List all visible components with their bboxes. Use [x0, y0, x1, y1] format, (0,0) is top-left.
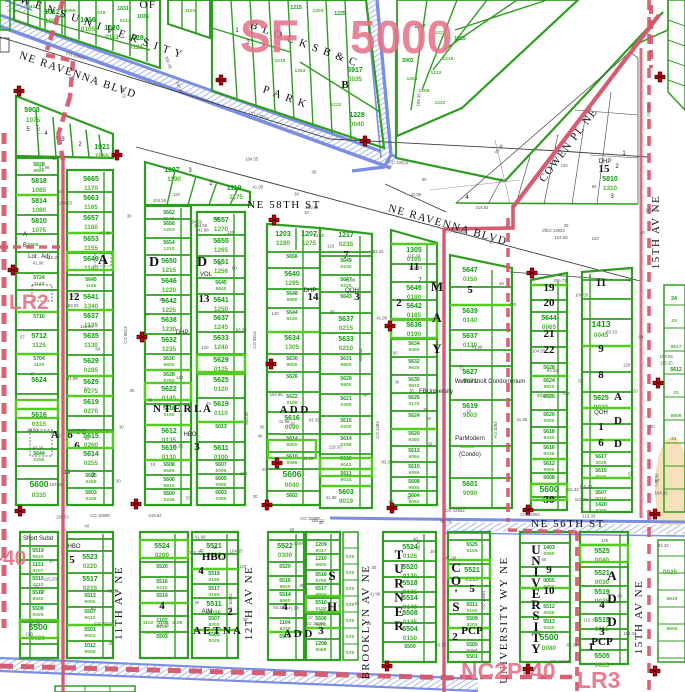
svg-text:5615: 5615: [340, 418, 352, 424]
svg-text:LR3: LR3: [577, 667, 620, 692]
svg-text:1165: 1165: [84, 204, 98, 211]
svg-text:120: 120: [239, 564, 247, 569]
svg-text:0095: 0095: [216, 468, 227, 474]
svg-text:QOH: QOH: [594, 410, 608, 416]
svg-text:1208: 1208: [419, 88, 430, 94]
svg-text:15TH AV NE: 15TH AV NE: [633, 580, 645, 655]
svg-text:5513: 5513: [543, 619, 555, 625]
svg-text:104.55: 104.55: [655, 491, 669, 496]
svg-text:41.98: 41.98: [369, 591, 380, 596]
svg-text:30: 30: [127, 213, 132, 218]
svg-text:5616: 5616: [543, 445, 555, 451]
svg-text:9830: 9830: [409, 485, 420, 491]
svg-text:5516: 5516: [279, 578, 291, 584]
svg-text:5520: 5520: [402, 564, 418, 571]
svg-text:30: 30: [148, 397, 153, 402]
svg-text:5645: 5645: [215, 280, 227, 286]
svg-text:1280: 1280: [276, 240, 291, 247]
svg-text:0125: 0125: [403, 553, 418, 560]
svg-text:4: 4: [198, 565, 204, 577]
svg-text:120: 120: [560, 163, 568, 168]
svg-text:83.33: 83.33: [313, 233, 324, 238]
svg-text:10: 10: [150, 462, 155, 467]
svg-text:41.98: 41.98: [445, 555, 456, 560]
svg-text:0270: 0270: [84, 408, 99, 415]
svg-text:9810: 9810: [164, 483, 175, 489]
svg-text:5624: 5624: [543, 378, 555, 384]
svg-text:0025: 0025: [33, 612, 44, 618]
svg-text:10: 10: [290, 421, 295, 426]
svg-text:60: 60: [58, 189, 63, 194]
svg-text:CO 13924: CO 13924: [388, 159, 408, 165]
svg-text:1102: 1102: [143, 620, 154, 626]
svg-text:NC2P-40: NC2P-40: [461, 658, 556, 684]
svg-text:MAY: MAY: [431, 279, 443, 356]
svg-text:60: 60: [638, 335, 643, 340]
svg-text:5712: 5712: [31, 333, 47, 340]
svg-text:1305: 1305: [285, 344, 300, 351]
svg-text:CO 429a2: CO 429a2: [445, 508, 465, 513]
svg-text:0055: 0055: [543, 578, 555, 584]
svg-text:019: 019: [346, 650, 354, 656]
svg-text:TURNER: TURNER: [394, 547, 404, 633]
svg-text:448.14: 448.14: [358, 348, 363, 362]
svg-text:9: 9: [598, 343, 604, 355]
svg-text:1119: 1119: [227, 185, 242, 192]
svg-text:CO 8814: CO 8814: [123, 326, 128, 344]
svg-text:9600: 9600: [164, 362, 175, 368]
svg-text:60: 60: [91, 606, 96, 611]
svg-text:5518: 5518: [402, 580, 418, 587]
svg-text:932875: 932875: [537, 393, 554, 399]
svg-text:-40: -40: [0, 547, 26, 570]
svg-text:9600: 9600: [341, 362, 352, 368]
svg-text:5612: 5612: [161, 428, 177, 435]
svg-text:019: 019: [346, 554, 354, 560]
svg-text:5512: 5512: [543, 604, 555, 610]
svg-text:019: 019: [346, 634, 354, 640]
svg-text:9042: 9042: [341, 462, 352, 468]
svg-text:A D D: A D D: [284, 628, 313, 640]
svg-text:5621: 5621: [340, 396, 352, 402]
svg-text:0040: 0040: [285, 482, 300, 489]
svg-text:1140: 1140: [34, 281, 45, 287]
svg-text:5654: 5654: [163, 240, 175, 246]
svg-text:60: 60: [592, 184, 597, 189]
svg-text:83.33: 83.33: [566, 643, 577, 648]
svg-text:120: 120: [71, 293, 79, 298]
svg-text:PCP: PCP: [591, 636, 613, 648]
svg-text:1145: 1145: [86, 283, 97, 289]
svg-text:160.85: 160.85: [646, 103, 651, 117]
svg-text:0185: 0185: [209, 592, 220, 598]
svg-text:5513: 5513: [84, 593, 96, 599]
svg-text:30: 30: [116, 479, 121, 484]
svg-text:57: 57: [628, 471, 633, 476]
svg-text:115.33: 115.33: [44, 577, 57, 582]
svg-text:60: 60: [300, 583, 305, 588]
svg-text:5630: 5630: [286, 356, 298, 362]
svg-text:5: 5: [467, 284, 473, 296]
svg-text:22: 22: [673, 390, 679, 396]
svg-text:83.33: 83.33: [309, 417, 320, 422]
svg-text:5608: 5608: [163, 462, 175, 468]
svg-text:1107: 1107: [164, 167, 179, 174]
svg-text:5521: 5521: [464, 567, 480, 574]
svg-text:115.33: 115.33: [409, 265, 422, 270]
svg-text:5516: 5516: [315, 572, 327, 578]
svg-text:9400: 9400: [287, 442, 298, 448]
svg-text:0230: 0230: [341, 264, 352, 270]
svg-text:5637: 5637: [83, 313, 99, 320]
svg-text:5508: 5508: [402, 610, 418, 617]
svg-text:9350: 9350: [409, 437, 420, 443]
svg-text:30: 30: [428, 442, 433, 447]
svg-text:664857: 664857: [460, 444, 477, 450]
svg-text:83.33: 83.33: [658, 543, 669, 548]
svg-text:5000: 5000: [350, 11, 452, 63]
svg-text:57: 57: [68, 429, 73, 434]
svg-text:104.55: 104.55: [156, 623, 170, 628]
svg-text:5724: 5724: [33, 275, 45, 281]
svg-text:DHP: DHP: [176, 330, 189, 336]
svg-text:1235: 1235: [162, 346, 177, 353]
svg-text:24: 24: [671, 296, 677, 302]
svg-text:5612: 5612: [670, 367, 682, 373]
svg-text:HBO: HBO: [67, 544, 80, 550]
svg-text:5605: 5605: [215, 476, 227, 482]
svg-text:5602: 5602: [286, 493, 298, 499]
svg-text:5500: 5500: [404, 644, 416, 650]
svg-text:5665: 5665: [83, 176, 99, 183]
svg-text:104.55: 104.55: [245, 157, 259, 162]
svg-text:QOH: QOH: [345, 288, 359, 294]
svg-text:PCP: PCP: [461, 625, 483, 637]
svg-text:0100: 0100: [467, 608, 478, 614]
svg-text:10: 10: [34, 584, 39, 589]
svg-text:5505: 5505: [466, 642, 478, 648]
svg-text:9107: 9107: [33, 568, 44, 574]
svg-text:0300: 0300: [278, 552, 293, 559]
svg-text:SF: SF: [240, 10, 299, 62]
svg-text:104.55: 104.55: [49, 482, 63, 487]
svg-text:57: 57: [145, 312, 150, 317]
svg-text:11: 11: [596, 277, 606, 289]
svg-text:60: 60: [650, 424, 655, 429]
svg-text:5514: 5514: [279, 592, 291, 598]
svg-text:20: 20: [544, 297, 556, 309]
svg-text:5523: 5523: [82, 554, 98, 561]
svg-text:D: D: [149, 255, 159, 270]
svg-text:5613: 5613: [215, 424, 227, 430]
svg-text:CO 7510: CO 7510: [94, 621, 112, 626]
svg-text:104.55: 104.55: [660, 354, 674, 359]
svg-text:0090: 0090: [216, 482, 227, 488]
svg-text:5514: 5514: [156, 593, 168, 599]
svg-text:21: 21: [544, 328, 555, 340]
svg-text:HBO: HBO: [183, 432, 196, 438]
svg-text:41.98: 41.98: [252, 184, 263, 189]
svg-text:5625: 5625: [83, 379, 99, 386]
svg-text:21: 21: [671, 436, 677, 442]
svg-text:5638: 5638: [161, 317, 177, 324]
svg-text:60: 60: [542, 557, 547, 562]
svg-text:0140: 0140: [463, 317, 478, 324]
svg-text:0025: 0025: [663, 569, 678, 576]
svg-text:5511: 5511: [206, 601, 221, 608]
svg-text:CO 13924: CO 13924: [545, 228, 565, 233]
svg-text:0245: 0245: [164, 497, 175, 503]
svg-text:D: D: [197, 255, 207, 270]
svg-text:1101: 1101: [185, 8, 196, 14]
svg-text:104.55: 104.55: [555, 235, 569, 240]
svg-text:A: A: [614, 391, 622, 403]
svg-text:104.55: 104.55: [575, 292, 589, 297]
svg-text:5626: 5626: [408, 395, 420, 401]
svg-text:40: 40: [214, 216, 219, 221]
svg-text:40: 40: [52, 156, 57, 161]
svg-text:219.92: 219.92: [475, 205, 489, 210]
svg-text:5646: 5646: [161, 278, 177, 285]
svg-text:1190: 1190: [167, 176, 181, 183]
svg-text:41.98: 41.98: [345, 277, 356, 282]
svg-text:5619: 5619: [83, 399, 99, 406]
svg-text:1228: 1228: [349, 112, 365, 119]
svg-text:5653: 5653: [83, 236, 99, 243]
svg-text:5640: 5640: [284, 271, 300, 278]
svg-text:120: 120: [327, 243, 335, 248]
svg-text:CO 42962: CO 42962: [520, 512, 540, 517]
svg-text:104.55: 104.55: [189, 219, 203, 224]
svg-text:5508: 5508: [32, 606, 44, 612]
svg-text:B: B: [341, 79, 349, 91]
svg-text:5525: 5525: [466, 542, 478, 548]
svg-text:0085: 0085: [216, 496, 227, 502]
svg-text:5628: 5628: [163, 372, 175, 378]
svg-text:83.33: 83.33: [373, 249, 384, 254]
svg-text:5634: 5634: [284, 335, 300, 342]
svg-text:5641: 5641: [83, 294, 99, 301]
svg-text:40: 40: [289, 527, 294, 532]
svg-text:30: 30: [564, 223, 569, 228]
svg-text:9045: 9045: [159, 630, 170, 636]
svg-text:5626: 5626: [286, 374, 298, 380]
svg-text:1217: 1217: [338, 232, 354, 239]
svg-text:5607: 5607: [595, 490, 607, 496]
svg-text:120: 120: [592, 236, 600, 241]
svg-text:AO 1083: AO 1083: [493, 421, 498, 439]
svg-text:5818: 5818: [31, 178, 47, 185]
svg-text:41.98: 41.98: [198, 227, 209, 232]
svg-text:57: 57: [355, 601, 360, 606]
svg-text:1275: 1275: [302, 240, 317, 247]
svg-text:83.33: 83.33: [27, 427, 38, 432]
svg-text:5633: 5633: [338, 336, 354, 343]
svg-text:41.98: 41.98: [472, 344, 483, 349]
svg-text:5603: 5603: [215, 490, 227, 496]
svg-text:83.33: 83.33: [606, 329, 617, 334]
svg-text:1031: 1031: [117, 6, 129, 12]
svg-text:1021: 1021: [94, 144, 110, 151]
svg-text:1160: 1160: [84, 224, 98, 231]
svg-text:30: 30: [108, 641, 113, 646]
svg-text:5519: 5519: [667, 596, 678, 602]
svg-text:12TH AV NE: 12TH AV NE: [243, 566, 255, 641]
svg-text:1108: 1108: [172, 620, 183, 626]
svg-text:5810: 5810: [31, 218, 47, 225]
svg-text:115.33: 115.33: [579, 485, 592, 490]
svg-text:60: 60: [56, 433, 61, 438]
svg-text:0117: 0117: [120, 18, 131, 24]
svg-text:N T E R L A: N T E R L A: [153, 403, 211, 415]
svg-text:CO 8814: CO 8814: [252, 331, 257, 349]
svg-text:1225: 1225: [162, 307, 177, 314]
svg-text:5: 5: [69, 554, 75, 566]
svg-text:1019: 1019: [95, 10, 106, 16]
svg-text:5662: 5662: [163, 210, 175, 216]
svg-text:41.98: 41.98: [39, 165, 50, 170]
svg-text:40: 40: [330, 309, 335, 314]
svg-text:120: 120: [173, 192, 181, 197]
svg-text:Short Subd: Short Subd: [23, 536, 53, 542]
svg-text:1420: 1420: [595, 502, 607, 508]
svg-text:019: 019: [346, 618, 354, 624]
svg-text:115.33: 115.33: [575, 497, 588, 502]
svg-text:120: 120: [563, 391, 571, 396]
svg-text:120: 120: [630, 388, 638, 393]
svg-text:9034: 9034: [341, 477, 352, 483]
svg-text:1212: 1212: [431, 70, 442, 76]
svg-text:0025: 0025: [596, 460, 607, 466]
svg-text:1035: 1035: [137, 14, 149, 20]
svg-text:9950: 9950: [287, 297, 298, 303]
svg-text:120: 120: [601, 538, 609, 543]
svg-text:10: 10: [544, 585, 556, 597]
svg-text:5814: 5814: [31, 198, 47, 205]
svg-text:30: 30: [130, 388, 135, 393]
svg-text:A: A: [23, 232, 27, 238]
svg-text:60: 60: [393, 350, 398, 355]
svg-text:5655: 5655: [213, 238, 229, 245]
svg-text:CO 15098: CO 15098: [90, 513, 110, 518]
svg-text:30: 30: [253, 494, 258, 499]
svg-text:ParModern: ParModern: [455, 436, 485, 442]
svg-text:60: 60: [159, 297, 164, 302]
svg-text:5603: 5603: [338, 489, 354, 496]
svg-text:57: 57: [460, 366, 465, 371]
svg-text:1225: 1225: [454, 36, 466, 42]
svg-text:0005: 0005: [596, 508, 607, 514]
svg-text:Wethersbolt Condominium: Wethersbolt Condominium: [455, 379, 526, 385]
svg-text:1175: 1175: [229, 194, 243, 201]
svg-text:40: 40: [413, 536, 418, 541]
svg-text:5509: 5509: [466, 616, 478, 622]
svg-text:120: 120: [26, 632, 34, 637]
svg-text:30: 30: [363, 392, 368, 397]
svg-text:0085: 0085: [287, 460, 298, 466]
svg-text:9140: 9140: [287, 316, 298, 322]
svg-text:5631: 5631: [340, 356, 352, 362]
svg-text:5657: 5657: [83, 215, 99, 222]
svg-text:41.98: 41.98: [326, 495, 337, 500]
svg-text:5648: 5648: [286, 291, 298, 297]
svg-text:2: 2: [452, 631, 458, 643]
svg-text:0245: 0245: [86, 496, 97, 502]
svg-text:0120: 0120: [214, 386, 229, 393]
svg-text:120: 120: [176, 375, 184, 380]
svg-text:83.33: 83.33: [236, 328, 247, 333]
svg-text:9019: 9019: [339, 498, 354, 505]
svg-text:019: 019: [346, 586, 354, 592]
svg-text:1209: 1209: [315, 542, 327, 548]
svg-text:5504: 5504: [402, 626, 418, 633]
svg-text:115.33: 115.33: [170, 443, 183, 448]
svg-text:115.33: 115.33: [80, 324, 93, 329]
svg-text:5637: 5637: [338, 316, 354, 323]
svg-text:1256: 1256: [214, 268, 229, 275]
svg-text:5620: 5620: [543, 412, 555, 418]
svg-text:9820: 9820: [544, 384, 555, 390]
svg-text:5650: 5650: [161, 258, 177, 265]
svg-text:1203: 1203: [164, 227, 175, 233]
svg-text:9074: 9074: [145, 630, 156, 636]
svg-text:0040: 0040: [544, 625, 555, 631]
svg-text:2: 2: [396, 297, 402, 309]
svg-text:0210: 0210: [339, 345, 354, 352]
svg-text:10: 10: [542, 228, 547, 233]
svg-text:249.92: 249.92: [148, 513, 162, 518]
svg-text:0175: 0175: [409, 401, 420, 407]
svg-text:23: 23: [671, 318, 677, 324]
svg-text:1080: 1080: [32, 207, 47, 214]
svg-text:30: 30: [260, 424, 265, 429]
svg-text:40: 40: [206, 401, 211, 406]
svg-text:10: 10: [304, 210, 309, 215]
svg-text:0050: 0050: [544, 418, 555, 424]
svg-text:1295: 1295: [285, 280, 300, 287]
svg-text:40: 40: [218, 556, 223, 561]
svg-text:83.33: 83.33: [33, 445, 44, 450]
svg-text:115.33: 115.33: [660, 361, 673, 366]
svg-text:30: 30: [294, 191, 299, 196]
svg-text:5510: 5510: [315, 600, 327, 606]
svg-text:60: 60: [96, 346, 101, 351]
svg-text:5525: 5525: [594, 548, 610, 555]
svg-text:1265: 1265: [214, 247, 229, 254]
svg-text:5600: 5600: [163, 491, 175, 497]
svg-text:5645: 5645: [85, 277, 97, 283]
svg-text:1225: 1225: [334, 11, 346, 17]
svg-text:22: 22: [544, 344, 556, 356]
svg-text:10: 10: [466, 409, 471, 414]
svg-text:9095: 9095: [409, 470, 420, 476]
svg-text:1230: 1230: [162, 326, 177, 333]
svg-text:VOL: VOL: [200, 272, 213, 278]
svg-text:5644: 5644: [286, 310, 298, 316]
svg-text:40: 40: [489, 239, 494, 244]
svg-text:60: 60: [617, 593, 622, 598]
svg-text:1055: 1055: [95, 153, 110, 160]
svg-text:5: 5: [469, 583, 475, 595]
svg-text:9820: 9820: [280, 584, 291, 590]
svg-text:9017: 9017: [316, 548, 327, 554]
svg-text:120: 120: [271, 311, 279, 316]
svg-text:1125: 1125: [32, 342, 46, 349]
svg-text:40: 40: [30, 372, 35, 377]
svg-text:115.33: 115.33: [56, 514, 69, 519]
svg-text:5622: 5622: [161, 386, 177, 393]
svg-text:1222: 1222: [331, 102, 342, 108]
